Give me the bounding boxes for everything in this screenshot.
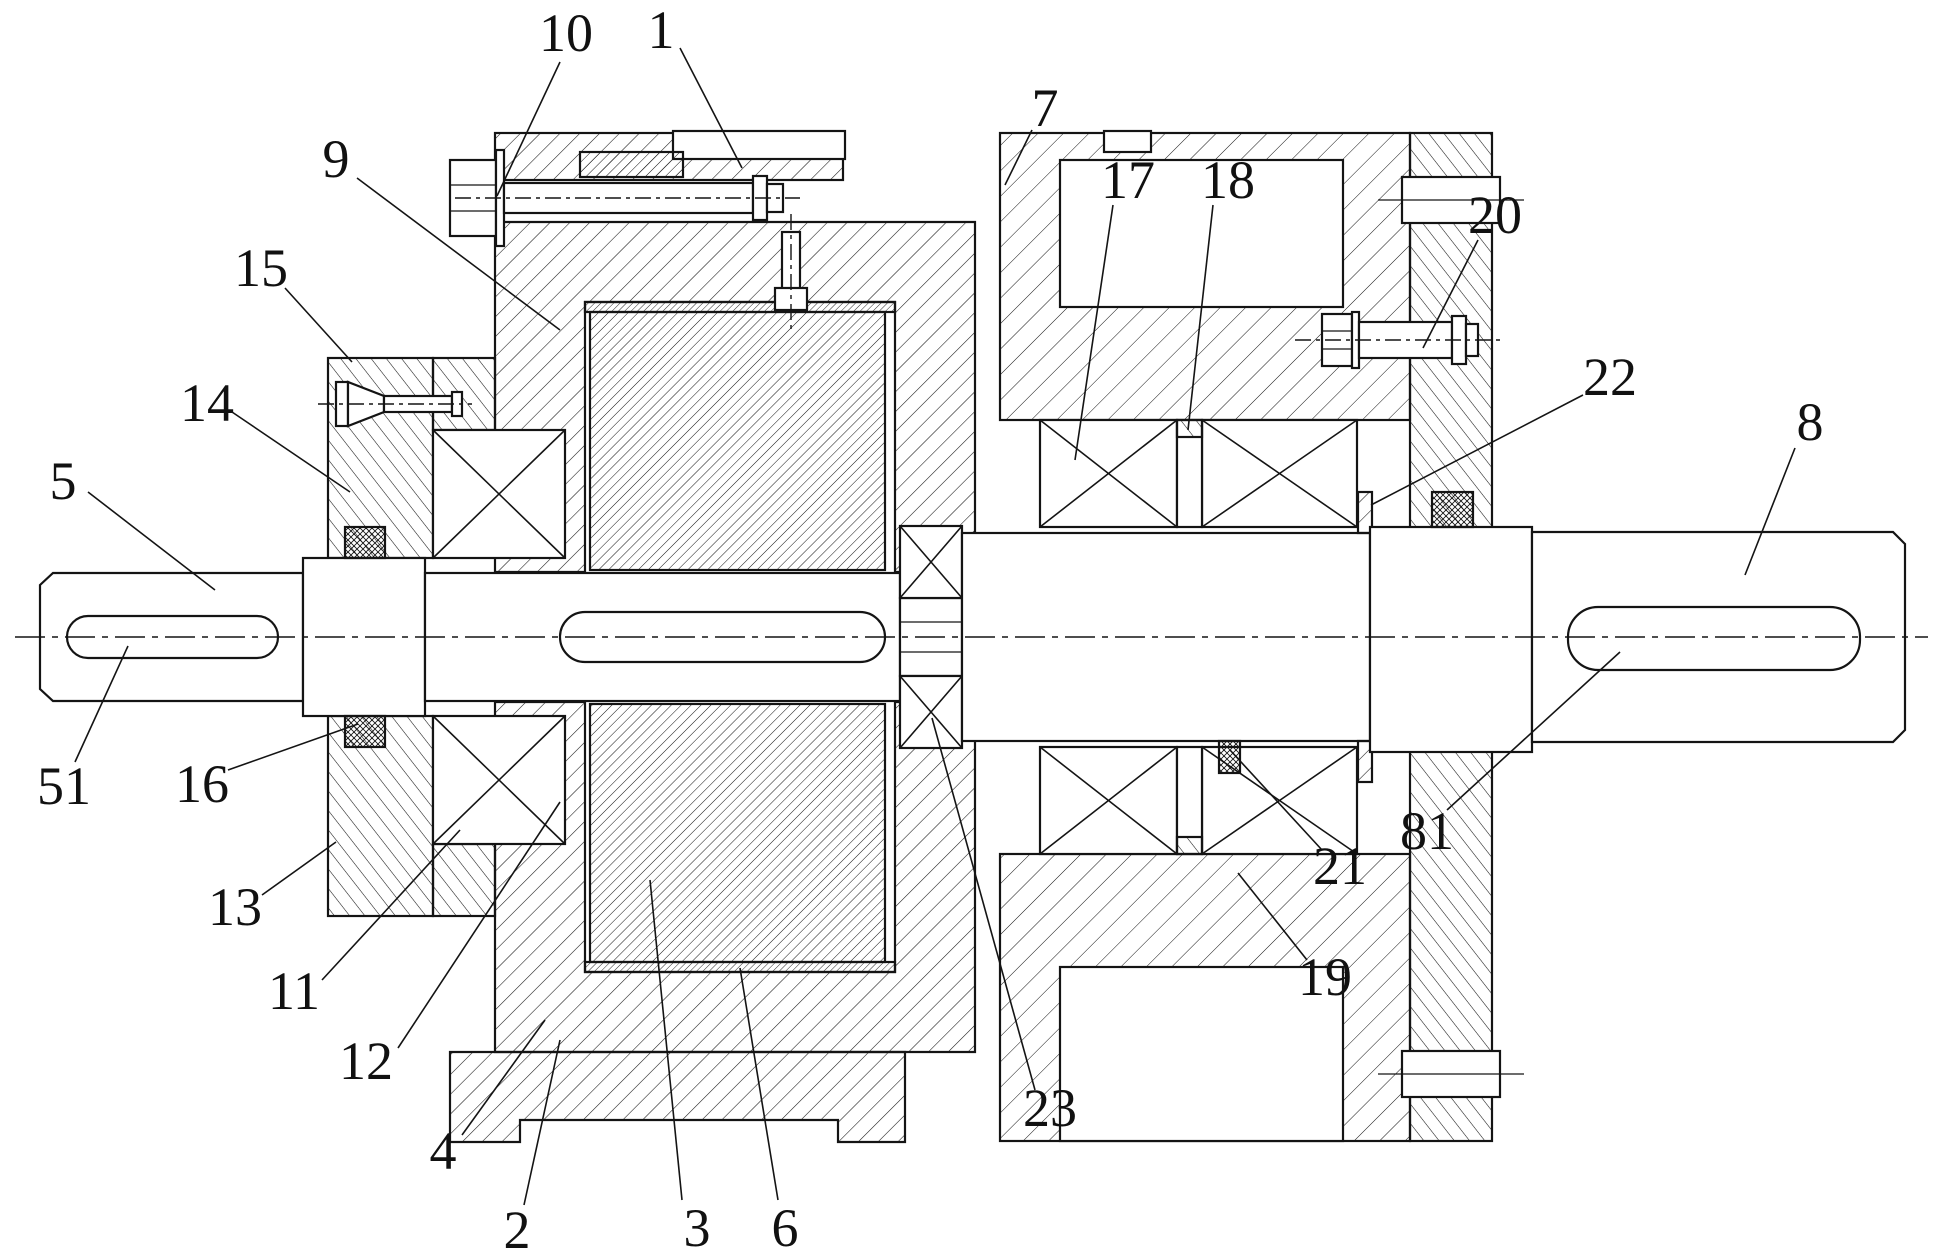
seal-16-lower — [345, 716, 385, 747]
housing-7-top-notch — [1104, 131, 1151, 152]
callout-1: 1 — [648, 0, 675, 60]
output-hub — [1370, 527, 1532, 752]
figure-canvas: 1017171820915142285511613111242362319218… — [0, 0, 1942, 1260]
callout-17: 17 — [1101, 150, 1155, 210]
callout-10: 10 — [539, 3, 593, 63]
callout-81: 81 — [1400, 801, 1454, 861]
patent-figure-page: 1017171820915142285511613111242362319218… — [0, 0, 1942, 1260]
callout-13: 13 — [208, 877, 262, 937]
callout-6: 6 — [772, 1198, 799, 1258]
callout-18: 18 — [1201, 150, 1255, 210]
callout-16: 16 — [175, 754, 229, 814]
bottom-cover-2 — [450, 1052, 905, 1142]
pilot-bearing-23-lower — [900, 676, 962, 748]
pilot-bearing-23-upper — [900, 526, 962, 598]
callout-51: 51 — [37, 756, 91, 816]
callout-23: 23 — [1023, 1078, 1077, 1138]
rotor-block-lower — [590, 704, 885, 962]
callout-20: 20 — [1468, 185, 1522, 245]
leader-line-15 — [285, 288, 352, 362]
callout-4: 4 — [430, 1121, 457, 1181]
callout-5: 5 — [50, 451, 77, 511]
callout-3: 3 — [684, 1198, 711, 1258]
end-plate-1-recess — [673, 131, 845, 159]
leader-line-13 — [262, 842, 336, 895]
callout-12: 12 — [339, 1031, 393, 1091]
callout-2: 2 — [504, 1200, 531, 1260]
containment-can-6-upper — [585, 302, 895, 312]
bearing-spacer-18-lower — [1177, 837, 1202, 854]
callout-15: 15 — [234, 238, 288, 298]
flange-bridge-15-upper — [433, 358, 495, 430]
main-bearing-11-upper — [433, 430, 565, 558]
callout-14: 14 — [180, 373, 234, 433]
rotor-block-upper — [590, 312, 885, 570]
callout-21: 21 — [1313, 836, 1367, 896]
callout-8: 8 — [1797, 392, 1824, 452]
callout-7: 7 — [1032, 78, 1059, 138]
callout-22: 22 — [1583, 347, 1637, 407]
main-bearing-17-lower — [1040, 747, 1357, 854]
callout-19: 19 — [1298, 947, 1352, 1007]
spacer-block — [580, 152, 683, 177]
flange-bridge-15-lower — [433, 844, 495, 916]
callout-11: 11 — [268, 961, 320, 1021]
callout-9: 9 — [323, 129, 350, 189]
main-bearing-17-upper — [1040, 420, 1357, 527]
seal-16-upper — [345, 527, 385, 558]
seal-21-upper — [1432, 492, 1473, 527]
